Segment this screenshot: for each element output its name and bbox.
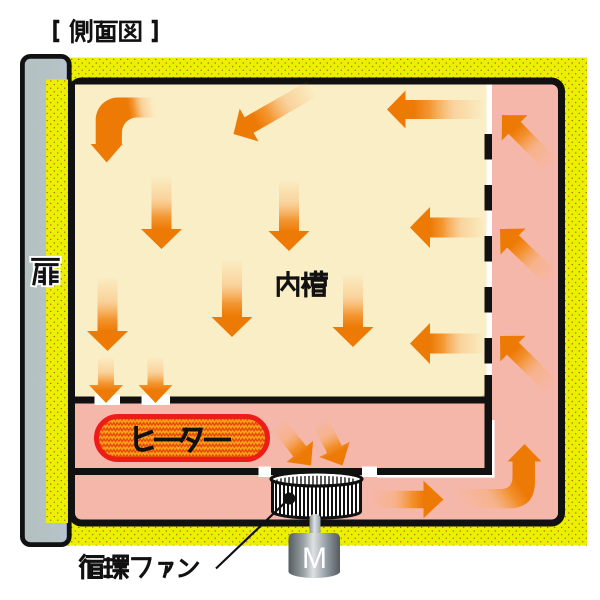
svg-text:M: M [302, 542, 327, 575]
